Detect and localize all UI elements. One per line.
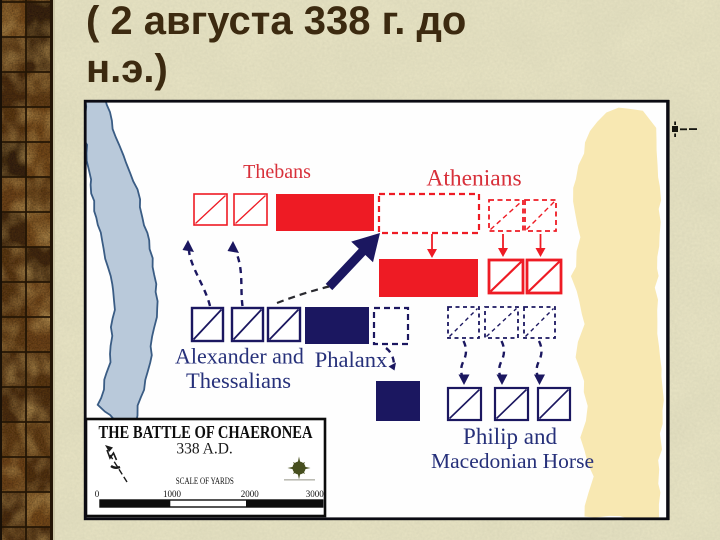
svg-text:0: 0 [95,489,100,499]
svg-text:Thessalians: Thessalians [186,368,291,393]
svg-text:Athenians: Athenians [426,166,521,192]
svg-text:Philip and: Philip and [463,424,557,449]
svg-text:Macedonian Horse: Macedonian Horse [431,449,594,473]
svg-text:Thebans: Thebans [243,161,311,183]
svg-text:SCALE OF YARDS: SCALE OF YARDS [176,477,234,487]
svg-text:338 A.D.: 338 A.D. [176,441,232,458]
svg-text:3000: 3000 [306,489,325,499]
svg-text:2000: 2000 [241,489,260,499]
svg-text:THE BATTLE OF CHAERONEA: THE BATTLE OF CHAERONEA [99,422,313,442]
svg-text:Alexander and: Alexander and [175,344,304,369]
svg-text:1000: 1000 [163,489,182,499]
svg-text:Phalanx: Phalanx [315,347,388,372]
